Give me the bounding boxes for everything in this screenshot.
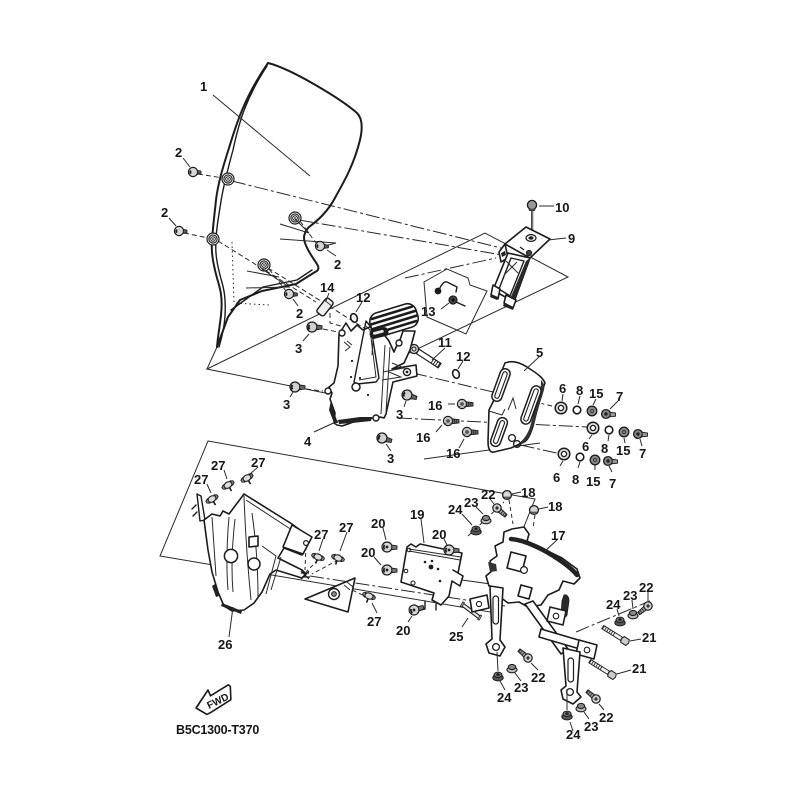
svg-text:18: 18 — [548, 499, 562, 514]
svg-text:19: 19 — [410, 507, 424, 522]
svg-text:8: 8 — [576, 383, 583, 398]
svg-text:2: 2 — [296, 306, 303, 321]
svg-text:21: 21 — [632, 661, 646, 676]
svg-text:27: 27 — [367, 614, 381, 629]
svg-text:20: 20 — [396, 623, 410, 638]
svg-text:20: 20 — [371, 516, 385, 531]
svg-text:9: 9 — [568, 231, 575, 246]
svg-text:15: 15 — [586, 474, 600, 489]
svg-text:22: 22 — [481, 487, 495, 502]
svg-text:16: 16 — [428, 398, 442, 413]
svg-text:20: 20 — [432, 527, 446, 542]
svg-text:25: 25 — [449, 629, 463, 644]
svg-text:27: 27 — [194, 472, 208, 487]
svg-text:11: 11 — [438, 335, 452, 350]
svg-text:8: 8 — [572, 472, 579, 487]
svg-text:27: 27 — [314, 527, 328, 542]
svg-text:27: 27 — [251, 455, 265, 470]
svg-text:21: 21 — [642, 630, 656, 645]
svg-text:3: 3 — [295, 341, 302, 356]
svg-text:16: 16 — [446, 446, 460, 461]
svg-text:16: 16 — [416, 430, 430, 445]
svg-text:27: 27 — [211, 458, 225, 473]
svg-text:6: 6 — [582, 439, 589, 454]
svg-text:23: 23 — [623, 588, 637, 603]
svg-text:7: 7 — [609, 476, 616, 491]
svg-text:23: 23 — [584, 719, 598, 734]
svg-text:12: 12 — [456, 349, 470, 364]
svg-text:22: 22 — [599, 710, 613, 725]
svg-text:3: 3 — [387, 451, 394, 466]
svg-text:3: 3 — [396, 407, 403, 422]
svg-text:24: 24 — [606, 597, 621, 612]
svg-text:10: 10 — [555, 200, 569, 215]
svg-text:7: 7 — [616, 389, 623, 404]
svg-text:2: 2 — [334, 257, 341, 272]
svg-text:22: 22 — [639, 580, 653, 595]
svg-text:6: 6 — [559, 381, 566, 396]
svg-text:14: 14 — [320, 280, 335, 295]
svg-text:15: 15 — [589, 386, 603, 401]
svg-text:23: 23 — [514, 680, 528, 695]
svg-text:18: 18 — [521, 485, 535, 500]
svg-text:3: 3 — [283, 397, 290, 412]
svg-text:23: 23 — [464, 495, 478, 510]
svg-text:4: 4 — [304, 434, 312, 449]
svg-text:24: 24 — [448, 502, 463, 517]
svg-text:20: 20 — [361, 545, 375, 560]
svg-text:8: 8 — [601, 441, 608, 456]
svg-text:5: 5 — [536, 345, 543, 360]
svg-text:22: 22 — [531, 670, 545, 685]
svg-text:17: 17 — [551, 528, 565, 543]
svg-text:27: 27 — [339, 520, 353, 535]
svg-text:24: 24 — [497, 690, 512, 705]
svg-text:7: 7 — [639, 446, 646, 461]
svg-text:1: 1 — [200, 79, 207, 94]
svg-text:26: 26 — [218, 637, 232, 652]
svg-text:24: 24 — [566, 727, 581, 742]
svg-text:12: 12 — [356, 290, 370, 305]
svg-text:15: 15 — [616, 443, 630, 458]
svg-text:13: 13 — [421, 304, 435, 319]
svg-text:2: 2 — [175, 145, 182, 160]
svg-text:2: 2 — [161, 205, 168, 220]
svg-text:B5C1300-T370: B5C1300-T370 — [176, 723, 259, 737]
svg-text:6: 6 — [553, 470, 560, 485]
